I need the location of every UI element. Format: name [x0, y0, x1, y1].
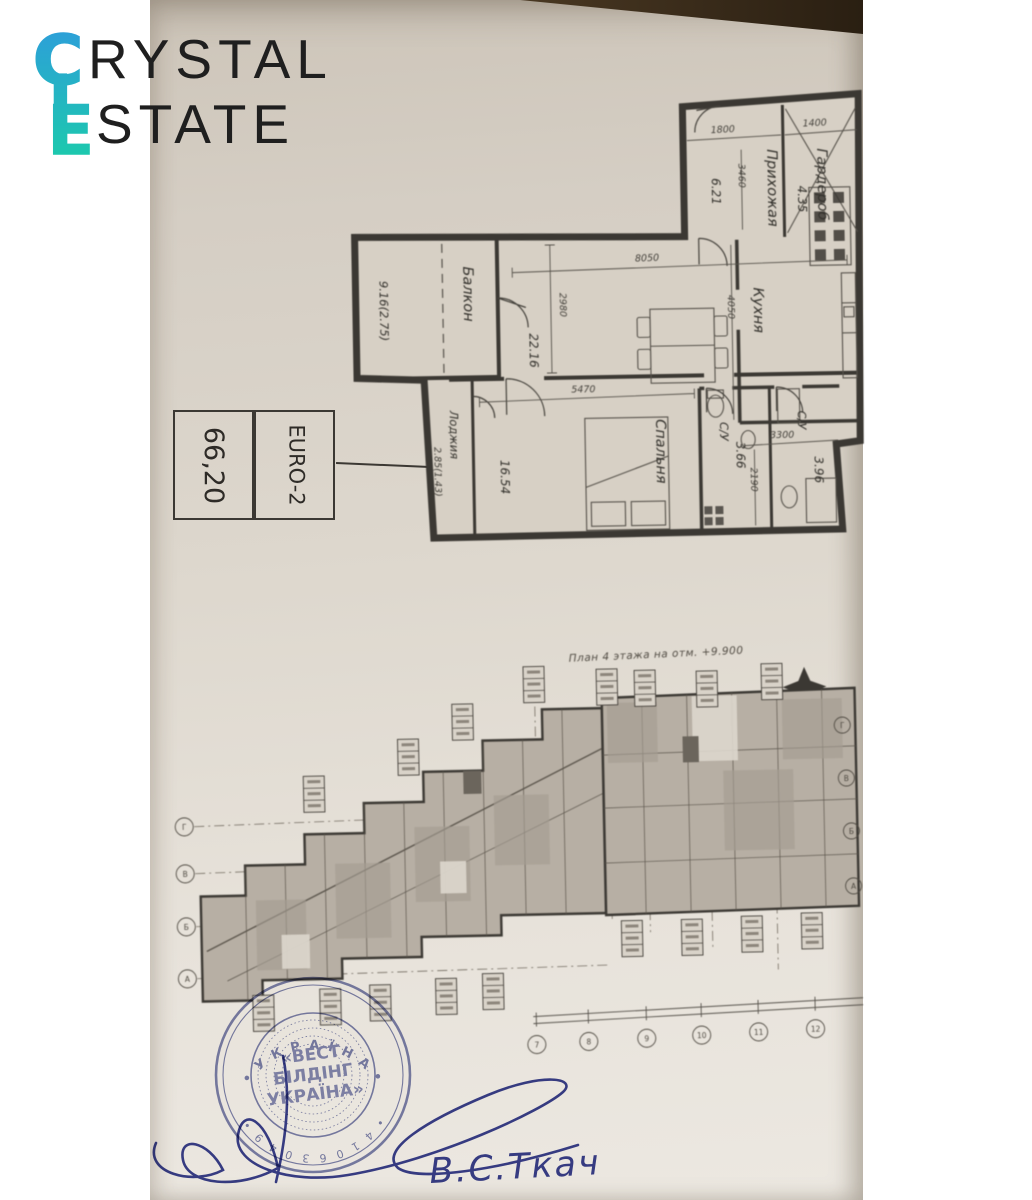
bath2-area: 3.96: [811, 456, 825, 483]
row-axis-g: Г: [182, 823, 187, 832]
apartment-floor-plan: Балкон 9.16(2.75) Прихожая 6.21 Гардероб…: [344, 87, 872, 544]
logo-key-monogram-icon: C E: [30, 28, 96, 158]
unit-type-value: EURO-2: [285, 424, 309, 505]
dim-4050: 4050: [725, 295, 736, 319]
signature-name: В.С.Ткач: [428, 1143, 601, 1192]
tag-box: [681, 919, 703, 955]
unit-area-value: 66,20: [198, 426, 229, 503]
tag-box: [696, 671, 718, 707]
dim-8050: 8050: [635, 253, 660, 265]
tag-box: [634, 670, 656, 706]
loggia-area: 2.85(1.43): [431, 447, 443, 497]
dim-3460: 3460: [735, 164, 746, 188]
bottom-dimension-line: [533, 996, 863, 1027]
dim-1800: 1800: [710, 124, 735, 136]
bath1-label: С/У: [717, 422, 731, 442]
loggia-label: Лоджия: [447, 410, 462, 460]
storey-plan-title: План 4 этажа на отм. +9.900: [568, 645, 743, 665]
tag-box: [741, 916, 763, 952]
hallway-label: Прихожая: [763, 149, 780, 227]
row-axis-v: В: [183, 870, 188, 879]
tag-box: [452, 704, 474, 740]
row-axis-b2: Б: [849, 827, 854, 836]
logo-letter-e: E: [48, 92, 95, 158]
bedroom-label: Спальня: [652, 419, 669, 484]
wardrobe-label: Гардероб: [813, 148, 830, 220]
dim-2190: 2190: [748, 467, 759, 491]
tag-box: [303, 776, 325, 812]
hallway-area: 6.21: [709, 178, 723, 205]
tag-box: [761, 663, 783, 699]
col-axis-12: 12: [811, 1025, 821, 1034]
tag-box: [397, 739, 419, 775]
bedroom-area: 16.54: [497, 460, 512, 495]
logo-word-estate: STATE: [96, 97, 295, 152]
row-axis-b: Б: [184, 923, 189, 932]
col-axis-9: 9: [644, 1034, 649, 1043]
logo-word-crystal: RYSTAL: [88, 32, 333, 87]
tag-box: [596, 669, 618, 705]
screenshot-root: C E RYSTAL STATE 66,20 EURO-2: [0, 0, 1032, 1200]
unit-area-cell: 66,20: [175, 412, 254, 518]
crystal-estate-logo: C E RYSTAL STATE: [28, 26, 338, 156]
bath2-label: С/У: [795, 411, 809, 431]
balcony-area: 9.16(2.75): [376, 281, 391, 341]
tag-box: [801, 913, 823, 949]
bath1-area: 3.66: [733, 442, 747, 469]
row-axis-v2: В: [844, 774, 849, 783]
living-area: 22.16: [526, 333, 541, 368]
dim-5470: 5470: [571, 384, 595, 395]
dim-1400: 1400: [802, 117, 827, 129]
row-axis-markers: Г В Б А: [175, 818, 197, 988]
col-axis-11: 11: [754, 1028, 764, 1037]
balcony-label: Балкон: [459, 266, 476, 321]
unit-type-cell: EURO-2: [256, 412, 337, 518]
dim-2980: 2980: [557, 293, 568, 317]
tag-box: [621, 920, 643, 956]
row-axis-g2: Г: [840, 721, 845, 730]
tag-box: [523, 666, 545, 702]
col-axis-8: 8: [586, 1037, 591, 1046]
tag-box: [482, 973, 504, 1009]
kitchen-label: Кухня: [750, 287, 767, 333]
dim-3300: 3300: [770, 430, 794, 441]
wardrobe-area: 4.35: [795, 185, 809, 212]
logo-letter-c: C: [33, 28, 83, 101]
signature-block: В.С.Ткач: [148, 1048, 708, 1200]
col-axis-10: 10: [697, 1031, 707, 1040]
unit-summary-card: 66,20 EURO-2: [173, 410, 335, 520]
